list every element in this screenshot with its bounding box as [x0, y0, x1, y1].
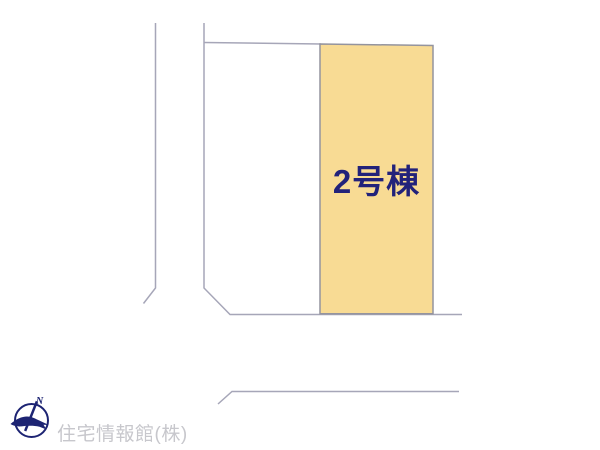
- company-name: 住宅情報館(株): [57, 419, 188, 446]
- compass-north-letter: N: [35, 396, 44, 407]
- compass-bird-icon: N: [11, 396, 49, 437]
- company-logo: N: [0, 0, 600, 450]
- plot-map-canvas: 2号棟 N 住宅情報館(株): [0, 0, 600, 450]
